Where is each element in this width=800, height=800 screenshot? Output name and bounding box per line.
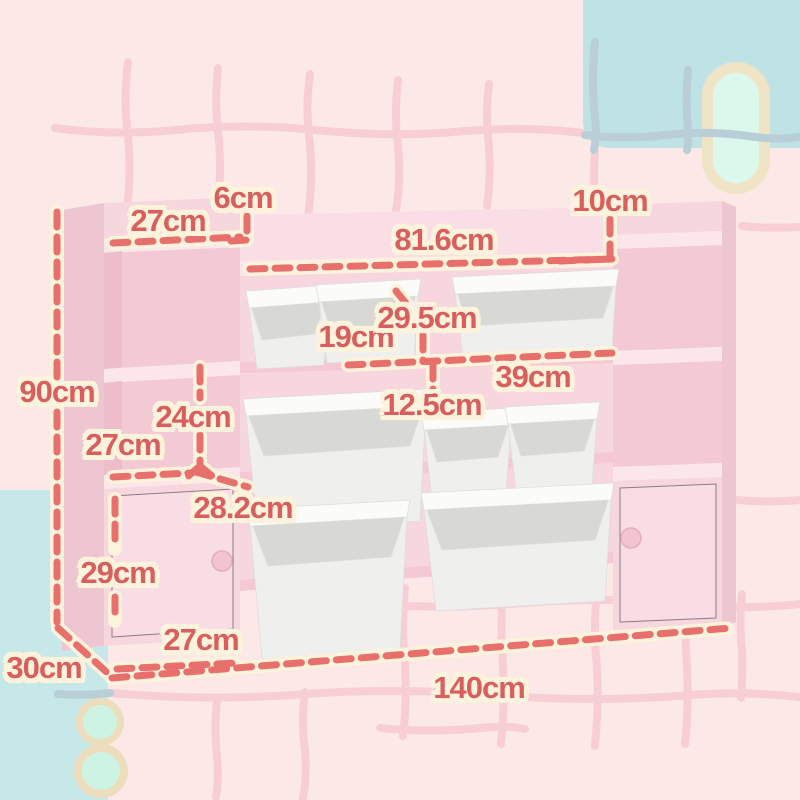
product-dimension-diagram: 27cm 6cm 10cm 81.6cm 90cm 19cm 29.5cm 39… [0, 0, 800, 800]
dim-label-left-top-depth: 27cm [130, 203, 205, 239]
dim-label-middle-shelf-width: 81.6cm [394, 222, 493, 258]
dim-label-shelf-diagonal-depth: 28.2cm [193, 490, 292, 526]
dim-label-overall-width: 140cm [433, 670, 525, 706]
dim-label-cubby-width: 27cm [85, 427, 160, 463]
dim-label-overall-height: 90cm [19, 374, 94, 410]
dim-label-door-width: 27cm [163, 622, 238, 658]
dim-label-bin-depth: 29.5cm [377, 300, 476, 336]
dim-label-overall-depth: 30cm [6, 650, 81, 686]
dim-label-left-riser-height: 6cm [213, 180, 272, 216]
dim-label-large-bin-width: 39cm [495, 359, 570, 395]
dim-label-bin-height: 12.5cm [382, 387, 481, 423]
dim-label-cubby-height: 24cm [155, 399, 230, 435]
dim-label-right-riser-height: 10cm [572, 183, 647, 219]
dim-label-door-height: 29cm [80, 555, 155, 591]
